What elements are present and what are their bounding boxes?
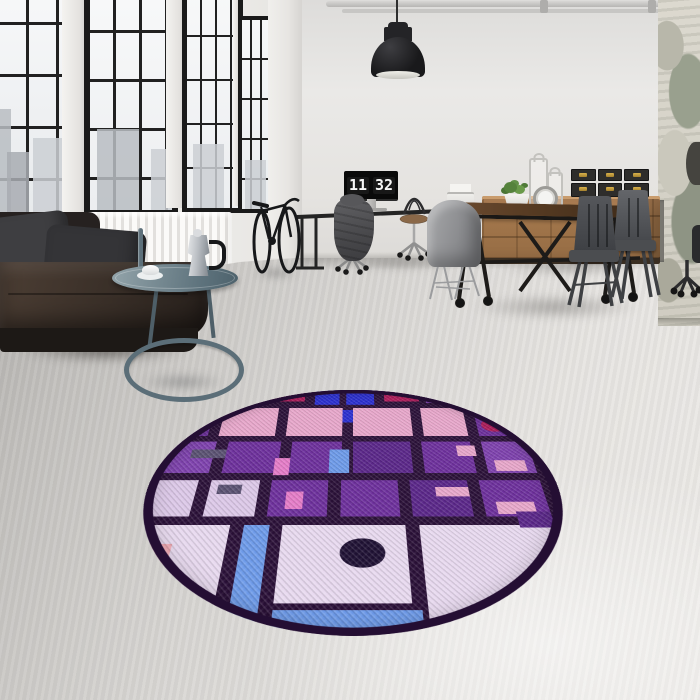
window-pillar (166, 0, 182, 208)
city-building (7, 152, 29, 215)
office-chair-partial (692, 225, 700, 263)
city-building (245, 160, 266, 209)
coffee-cup (142, 265, 159, 275)
window-pillar (233, 0, 238, 206)
draped-jacket (334, 199, 374, 261)
city-building (193, 144, 224, 209)
window-pillar (62, 0, 84, 212)
moka-pot-lid (193, 229, 202, 237)
clock-minutes: 32 (373, 177, 395, 194)
window-3-glass (187, 0, 238, 208)
pipe-joint (540, 0, 548, 13)
plant (504, 182, 517, 193)
wall-corner-pillar (268, 0, 302, 258)
metal-chair-back (614, 190, 652, 242)
rug-shadow (150, 476, 566, 648)
ceiling-pipe (326, 1, 700, 7)
clock-hours: 11 (347, 177, 369, 194)
bicycle-shadow (246, 266, 306, 280)
loft-interior-photo: 11 32 (0, 0, 700, 700)
pipe-joint (648, 0, 656, 13)
side-table-ring-base (124, 338, 244, 402)
city-building (97, 129, 140, 210)
dining-shadow (445, 290, 667, 324)
storage-box (624, 169, 649, 181)
molded-chair-shell (427, 200, 481, 267)
storage-box (598, 169, 623, 181)
metal-chair-back (574, 196, 616, 252)
metal-chair-seat (569, 250, 619, 262)
window-1-glass (0, 0, 69, 215)
pendant-lamp-rim (376, 71, 420, 79)
storage-box (571, 183, 596, 197)
window-2-glass (90, 0, 172, 210)
wall-object (686, 142, 700, 185)
window-2 (84, 0, 178, 216)
storage-box (571, 169, 596, 181)
city-building (33, 138, 63, 215)
